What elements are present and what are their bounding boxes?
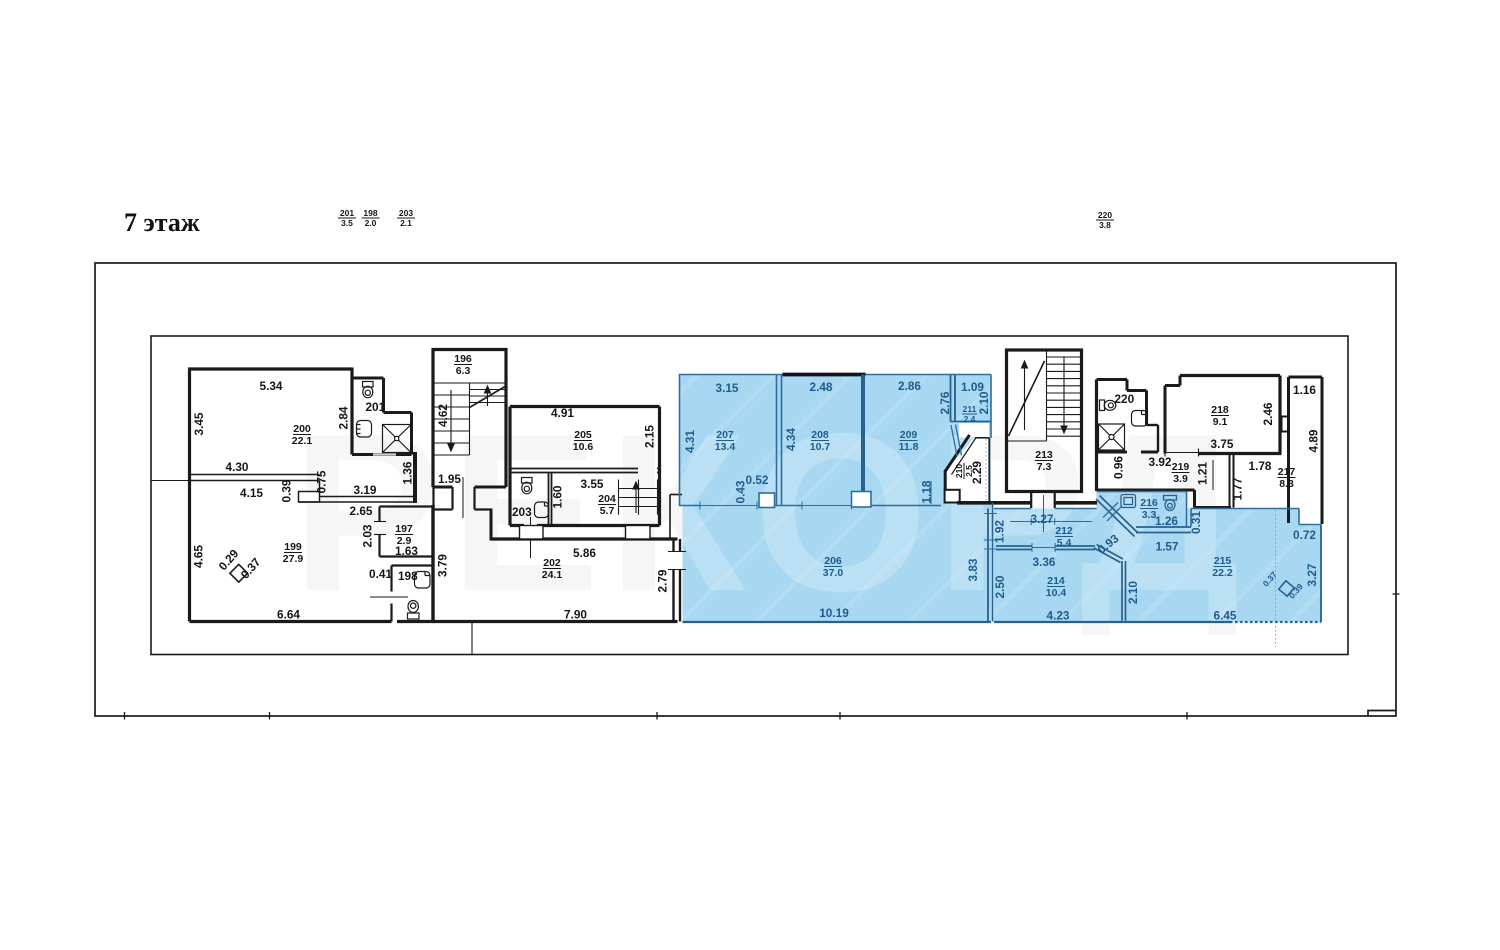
svg-text:5.86: 5.86 bbox=[573, 546, 596, 560]
svg-text:201: 201 bbox=[366, 400, 386, 414]
svg-text:198: 198 bbox=[398, 569, 418, 583]
svg-text:37.0: 37.0 bbox=[823, 567, 844, 579]
svg-text:1.63: 1.63 bbox=[395, 544, 418, 558]
svg-text:3.27: 3.27 bbox=[1031, 512, 1054, 526]
svg-text:4.31: 4.31 bbox=[683, 430, 697, 453]
svg-text:1.26: 1.26 bbox=[1155, 514, 1178, 528]
svg-text:210: 210 bbox=[954, 464, 964, 478]
svg-text:208: 208 bbox=[811, 429, 829, 441]
svg-text:1.60: 1.60 bbox=[551, 485, 565, 508]
svg-text:214: 214 bbox=[1047, 575, 1065, 587]
svg-text:4.34: 4.34 bbox=[784, 428, 798, 451]
svg-text:2.15: 2.15 bbox=[643, 425, 657, 448]
svg-text:7.3: 7.3 bbox=[1037, 461, 1052, 473]
svg-text:2.03: 2.03 bbox=[361, 524, 375, 547]
svg-text:10.4: 10.4 bbox=[1046, 587, 1067, 599]
svg-text:2.86: 2.86 bbox=[898, 379, 921, 393]
svg-text:2.84: 2.84 bbox=[337, 406, 351, 429]
svg-text:6.3: 6.3 bbox=[456, 365, 471, 377]
svg-text:22.1: 22.1 bbox=[292, 435, 313, 447]
svg-text:220: 220 bbox=[1115, 392, 1135, 406]
svg-text:217: 217 bbox=[1278, 466, 1296, 478]
svg-text:10.6: 10.6 bbox=[573, 441, 594, 453]
svg-text:3.9: 3.9 bbox=[1173, 473, 1188, 485]
svg-text:0.43: 0.43 bbox=[734, 480, 748, 503]
svg-text:8.3: 8.3 bbox=[1279, 478, 1294, 490]
svg-text:196: 196 bbox=[454, 353, 472, 365]
svg-text:3.5: 3.5 bbox=[341, 218, 353, 228]
svg-text:10.7: 10.7 bbox=[810, 441, 831, 453]
svg-text:7 этаж: 7 этаж bbox=[124, 208, 200, 237]
svg-text:3.19: 3.19 bbox=[354, 483, 377, 497]
svg-text:22.2: 22.2 bbox=[1212, 567, 1233, 579]
svg-text:202: 202 bbox=[543, 557, 561, 569]
svg-text:4.89: 4.89 bbox=[1307, 429, 1321, 452]
svg-text:4.30: 4.30 bbox=[226, 460, 249, 474]
svg-text:3.45: 3.45 bbox=[192, 412, 206, 435]
svg-text:4.65: 4.65 bbox=[192, 545, 206, 568]
svg-text:3.15: 3.15 bbox=[716, 381, 739, 395]
svg-text:2.46: 2.46 bbox=[1261, 402, 1275, 425]
svg-text:27.9: 27.9 bbox=[283, 553, 304, 565]
svg-text:6.45: 6.45 bbox=[1214, 609, 1237, 623]
svg-text:215: 215 bbox=[1214, 555, 1232, 567]
svg-text:1.36: 1.36 bbox=[401, 461, 415, 484]
svg-text:3.36: 3.36 bbox=[1033, 555, 1056, 569]
svg-text:201: 201 bbox=[340, 208, 354, 218]
svg-text:1.18: 1.18 bbox=[920, 480, 934, 503]
svg-text:213: 213 bbox=[1035, 449, 1053, 461]
svg-text:5.7: 5.7 bbox=[600, 505, 615, 517]
svg-text:2.29: 2.29 bbox=[970, 461, 984, 484]
svg-text:2.76: 2.76 bbox=[938, 391, 952, 414]
svg-text:3.92: 3.92 bbox=[1149, 455, 1172, 469]
svg-text:3.55: 3.55 bbox=[581, 477, 604, 491]
svg-text:24.1: 24.1 bbox=[542, 569, 563, 581]
svg-text:203: 203 bbox=[399, 208, 413, 218]
svg-text:200: 200 bbox=[293, 423, 311, 435]
svg-text:4.23: 4.23 bbox=[1047, 609, 1070, 623]
svg-text:206: 206 bbox=[824, 555, 842, 567]
svg-text:1.92: 1.92 bbox=[993, 520, 1007, 543]
svg-text:4.62: 4.62 bbox=[436, 404, 450, 427]
svg-text:1.95: 1.95 bbox=[438, 472, 461, 486]
svg-text:7.90: 7.90 bbox=[564, 608, 587, 622]
svg-text:203: 203 bbox=[512, 505, 532, 519]
svg-text:0.31: 0.31 bbox=[1189, 511, 1203, 534]
svg-text:0.52: 0.52 bbox=[746, 473, 769, 487]
svg-text:198: 198 bbox=[363, 208, 377, 218]
svg-text:2.0: 2.0 bbox=[365, 218, 377, 228]
svg-text:2.10: 2.10 bbox=[977, 391, 991, 414]
svg-text:1.21: 1.21 bbox=[1196, 462, 1210, 485]
svg-text:2.4: 2.4 bbox=[964, 414, 976, 424]
svg-text:220: 220 bbox=[1098, 210, 1112, 220]
svg-text:197: 197 bbox=[395, 523, 413, 535]
svg-text:219: 219 bbox=[1172, 461, 1190, 473]
svg-text:0.72: 0.72 bbox=[1293, 528, 1316, 542]
svg-text:5.4: 5.4 bbox=[1057, 537, 1072, 549]
svg-text:1.57: 1.57 bbox=[1156, 540, 1179, 554]
svg-text:0.39: 0.39 bbox=[280, 479, 294, 502]
svg-text:218: 218 bbox=[1211, 404, 1229, 416]
svg-text:2.79: 2.79 bbox=[656, 569, 670, 592]
svg-text:1.78: 1.78 bbox=[1249, 459, 1272, 473]
svg-text:2.10: 2.10 bbox=[1126, 581, 1140, 604]
svg-text:212: 212 bbox=[1055, 525, 1073, 537]
svg-text:3.83: 3.83 bbox=[966, 558, 980, 581]
svg-text:3.79: 3.79 bbox=[436, 554, 450, 577]
svg-text:199: 199 bbox=[284, 541, 302, 553]
svg-text:5.34: 5.34 bbox=[260, 379, 283, 393]
svg-text:0.41: 0.41 bbox=[369, 567, 392, 581]
svg-text:0.96: 0.96 bbox=[1112, 456, 1126, 479]
svg-text:13.4: 13.4 bbox=[715, 441, 736, 453]
svg-text:209: 209 bbox=[900, 429, 918, 441]
svg-text:6.64: 6.64 bbox=[277, 608, 300, 622]
svg-text:3.75: 3.75 bbox=[1211, 437, 1234, 451]
svg-text:1.77: 1.77 bbox=[1231, 477, 1245, 500]
svg-text:211: 211 bbox=[963, 404, 977, 414]
svg-text:2.1: 2.1 bbox=[400, 218, 412, 228]
svg-text:9.1: 9.1 bbox=[1213, 416, 1228, 428]
svg-text:204: 204 bbox=[598, 493, 616, 505]
svg-text:2.65: 2.65 bbox=[350, 504, 373, 518]
svg-text:3.8: 3.8 bbox=[1099, 220, 1111, 230]
svg-text:207: 207 bbox=[716, 429, 734, 441]
svg-text:0.75: 0.75 bbox=[315, 470, 329, 493]
svg-text:3.27: 3.27 bbox=[1305, 563, 1319, 586]
svg-text:11.8: 11.8 bbox=[899, 441, 919, 453]
svg-text:10.19: 10.19 bbox=[819, 606, 849, 620]
svg-text:2.50: 2.50 bbox=[993, 575, 1007, 598]
svg-text:2.48: 2.48 bbox=[810, 380, 833, 394]
svg-text:4.15: 4.15 bbox=[240, 486, 263, 500]
svg-text:4.91: 4.91 bbox=[551, 406, 574, 420]
svg-text:1.16: 1.16 bbox=[1293, 383, 1316, 397]
svg-text:216: 216 bbox=[1140, 497, 1158, 509]
svg-text:205: 205 bbox=[574, 429, 592, 441]
